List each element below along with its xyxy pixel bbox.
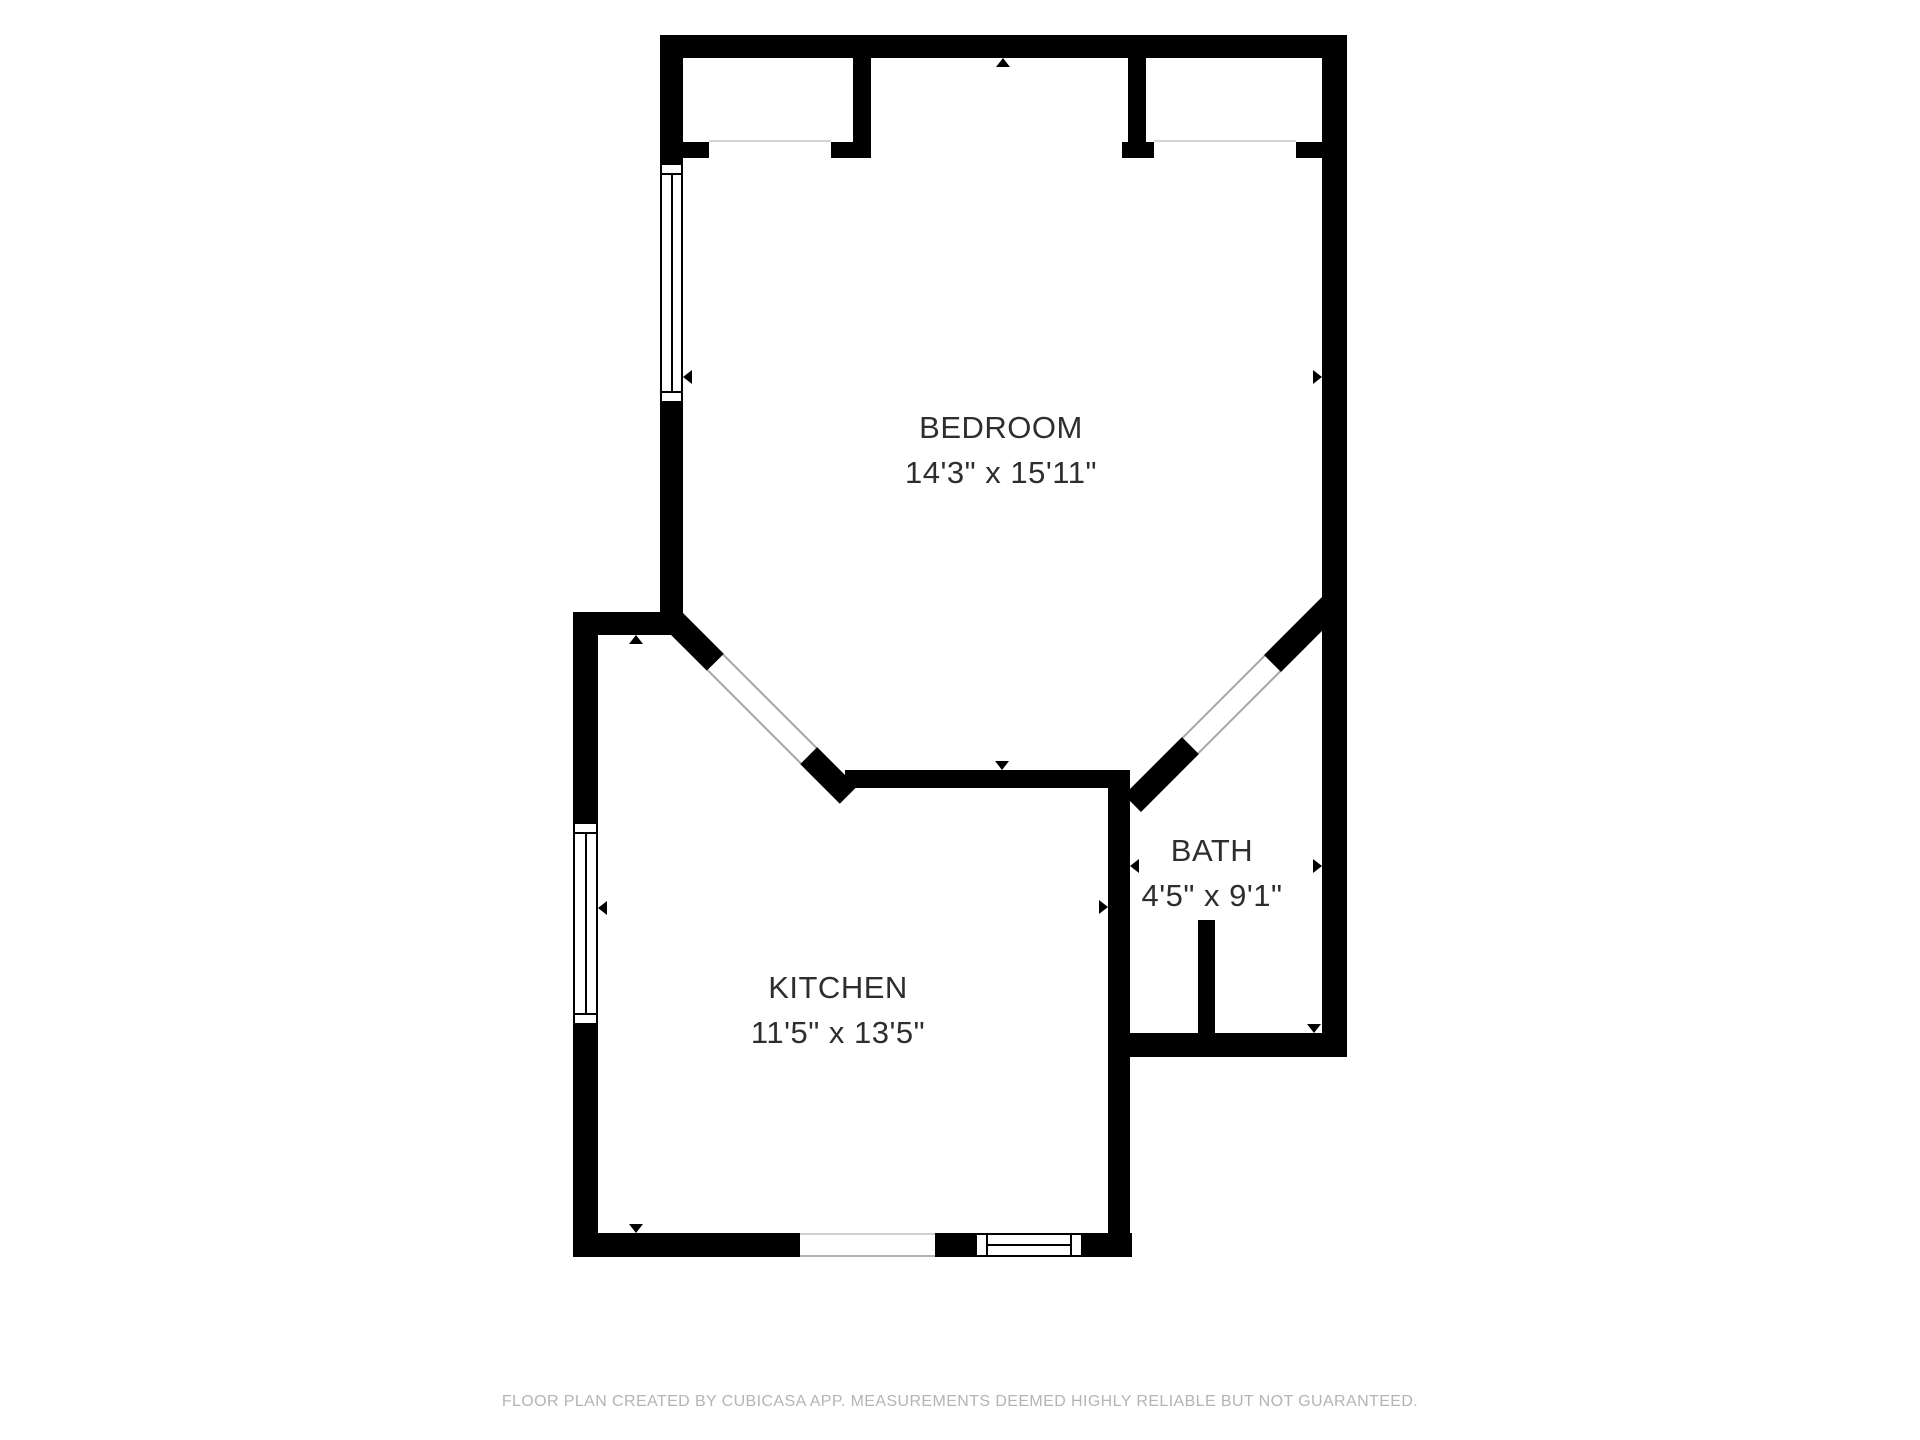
diagonal-wall-segment	[1124, 737, 1199, 812]
niche2-foot-left	[1122, 142, 1154, 158]
window-pane-line	[988, 1244, 1070, 1246]
bedroom-left-wall-upper	[660, 35, 683, 165]
window-pane-line	[585, 834, 587, 1013]
window-sill	[575, 1013, 596, 1015]
measurement-arrow-right-icon	[1313, 370, 1322, 384]
bedroom-kitchen-diagonal-wall	[663, 610, 857, 804]
kitchen-left-wall-upper	[573, 612, 598, 824]
room-name: BEDROOM	[905, 405, 1097, 450]
kitchen-left-window	[573, 822, 598, 1025]
room-name: BATH	[1141, 828, 1282, 873]
kitchen-label-block: KITCHEN 11'5" x 13'5"	[751, 965, 925, 1055]
bedroom-bottom-wall	[845, 770, 1110, 788]
bath-bottom-wall	[1108, 1033, 1347, 1057]
window-sill	[662, 391, 681, 393]
bath-door-stub-wall	[1198, 920, 1215, 1033]
niche1-opening-line	[709, 140, 831, 142]
window-pane-line	[671, 175, 673, 391]
room-dimensions: 14'3" x 15'11"	[905, 450, 1097, 495]
bedroom-bath-door-opening	[1182, 655, 1281, 754]
measurement-arrow-right-icon	[1313, 859, 1322, 873]
kitchen-bottom-wall-a	[573, 1233, 800, 1257]
footer-disclaimer: FLOOR PLAN CREATED BY CUBICASA APP. MEAS…	[0, 1393, 1920, 1411]
bedroom-left-wall-lower	[660, 401, 683, 635]
right-wall	[1322, 35, 1347, 1057]
measurement-arrow-left-icon	[683, 370, 692, 384]
floor-plan: BEDROOM 14'3" x 15'11" KITCHEN 11'5" x 1…	[0, 0, 1920, 1440]
measurement-arrow-right-icon	[1099, 900, 1108, 914]
bedroom-bath-diagonal-wall	[1124, 597, 1339, 812]
kitchen-bottom-window	[975, 1233, 1083, 1257]
measurement-arrow-down-icon	[995, 761, 1009, 770]
measurement-arrow-left-icon	[1130, 859, 1139, 873]
bedroom-window	[660, 163, 683, 403]
measurement-arrow-down-icon	[629, 1224, 643, 1233]
bedroom-kitchen-door-opening	[707, 654, 817, 764]
niche2-foot-right	[1296, 142, 1322, 158]
bath-label-block: BATH 4'5" x 9'1"	[1141, 828, 1282, 918]
room-dimensions: 4'5" x 9'1"	[1141, 873, 1282, 918]
measurement-arrow-up-icon	[629, 635, 643, 644]
bedroom-label-block: BEDROOM 14'3" x 15'11"	[905, 405, 1097, 495]
niche1-foot-right	[831, 142, 871, 158]
niche2-opening-line	[1154, 140, 1296, 142]
measurement-arrow-up-icon	[996, 58, 1010, 67]
room-name: KITCHEN	[751, 965, 925, 1010]
room-dimensions: 11'5" x 13'5"	[751, 1010, 925, 1055]
kitchen-bath-divider-wall	[1108, 770, 1130, 1257]
top-wall	[660, 35, 1347, 58]
measurement-arrow-left-icon	[598, 901, 607, 915]
measurement-arrow-right-icon	[1313, 615, 1322, 629]
window-sill	[1070, 1235, 1072, 1255]
kitchen-left-wall-lower	[573, 1024, 598, 1257]
kitchen-bottom-wall-b	[935, 1233, 975, 1257]
niche1-foot-left	[683, 142, 709, 158]
measurement-arrow-down-icon	[1307, 1024, 1321, 1033]
kitchen-bottom-door-opening	[800, 1233, 935, 1257]
